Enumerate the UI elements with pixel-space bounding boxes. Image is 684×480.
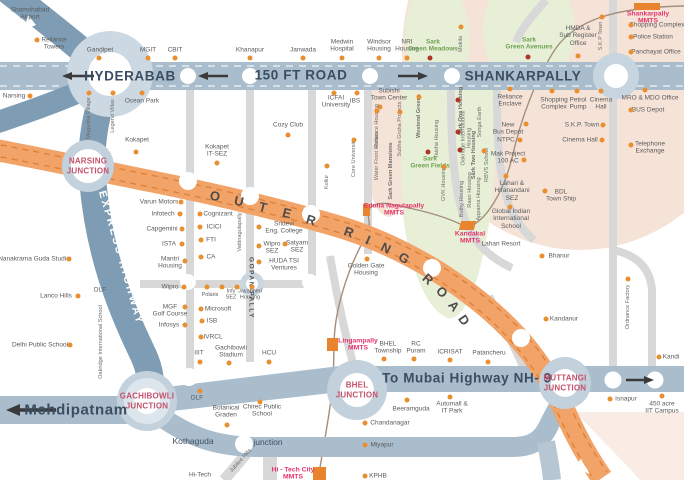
orr-letter: U [233,193,246,210]
map-label: junction [253,438,282,448]
map-label: Songa Earth [477,106,483,137]
poi-dot [428,56,433,61]
map-label: Apparna Housing [476,177,482,220]
map-label: Infy SEZ [226,289,237,302]
poi-dot [198,212,203,217]
map-label: Bhanur [549,252,570,259]
poi-dot [283,242,288,247]
poi-dot [198,360,203,365]
orr-letter: O [208,188,221,205]
poi-dot [540,254,545,259]
poi-dot [363,443,368,448]
poi-dot [456,98,461,103]
poi-dot [405,398,410,403]
poi-dot [146,56,151,61]
map-label: Kokapet IT-SEZ [205,144,229,159]
map-label: Cozy Club [273,121,303,128]
poi-dot [286,133,291,138]
map-label: DLF [94,286,106,293]
poi-dot [28,94,33,99]
poi-dot [459,25,464,30]
poi-dot [258,400,263,405]
map-label: Isnapur [615,395,637,402]
poi-dot [600,138,605,143]
poi-dot [182,285,187,290]
poi-dot [518,138,523,143]
poi-dot [67,257,72,262]
map-label: Chandanagar [370,419,409,426]
orr-letter: R [304,211,317,228]
poi-dot [442,165,447,170]
poi-dot [68,343,73,348]
poi-dot [198,389,203,394]
map-label: Lahari & Hiranandani SEZ [494,180,529,202]
map-label: DLF [191,394,203,401]
map-label: Global Indian International School [492,208,530,230]
map-label: ICRISAT [437,348,462,355]
map-label: CBIT [168,46,183,53]
map-label: IVRCL [203,333,222,340]
poi-dot [456,130,461,135]
map-label: Mantri Housing [158,256,182,271]
map-label: Miyapur [370,441,393,448]
map-label: Wipro [162,283,179,290]
mmts-station-label: Kandakal MMTS [455,231,485,246]
mmts-station-label: Shankarpally MMTS [627,11,669,26]
junction-label-gachibowli: GACHIBOWLI JUNCTION [120,391,174,410]
poi-dot [482,149,487,154]
poi-dot [426,150,431,155]
poi-dot [179,200,184,205]
map-label: HCU [262,349,276,356]
orr-letter: G [396,249,412,267]
map-label: Cinema Hall [562,136,597,143]
map-label: Cognizant [203,210,232,217]
map-label: BHEL Township [374,341,401,356]
map-label: Lahari Resort [481,240,520,247]
poi-dot [97,56,102,61]
poi-dot [522,158,527,163]
mmts-station-label: Hi - Tech City MMTS [272,467,315,480]
map-label: ISB [207,317,217,324]
map-label: Core University [351,139,357,177]
road-label-150ft: 150 FT ROAD [255,68,348,83]
map-label: Gachibowli Stadium [215,345,247,360]
map-label: ICFAI University [322,95,351,110]
poi-dot [486,360,491,365]
mmts-station-marker [634,3,660,10]
poi-dot [267,360,272,365]
road-label-mehdipatnam: Mehdipatnam [24,402,127,419]
map-label: S.K.P. Town [565,121,599,128]
poi-dot [657,355,662,360]
orr-letter: D [455,312,473,328]
map-label: Taisha Housing [434,120,440,158]
map-label: IIIT [194,349,203,356]
poi-dot [543,189,548,194]
map-label: New Bus Depot [493,122,523,137]
poi-dot [600,15,605,20]
poi-dot [375,109,380,114]
poi-dot [227,361,232,366]
map-label: Jubilee Hills [229,448,254,474]
map-label: Water Front Homes [374,132,380,181]
map-label: Buthy Housing [459,181,465,217]
poi-dot [76,294,81,299]
map-label: S.K.P Town [598,22,604,51]
map-label: Telephone Exchange [635,141,665,156]
poi-dot [524,122,529,127]
map-label: BUS Depot [632,106,665,113]
poi-dot [200,319,205,324]
poi-dot [576,54,581,59]
map-label: HMDA & Sub Register Office [559,25,597,47]
road-label-shankarpally: SHANKARPALLY [465,69,582,84]
poi-dot [448,358,453,363]
map-label: Hi-Tech [189,471,211,478]
junction-label-narsing: NARSING JUNCTION [67,156,110,175]
poi-dot [257,260,262,265]
map-label: Janwada [290,46,316,53]
poi-dot [643,88,648,93]
poi-dot [377,56,382,61]
poi-dot [550,89,555,94]
map-label: Ordnance Factory [625,285,631,330]
map-label: Kollur [324,175,330,189]
map-label: Infotech [151,210,174,217]
road-label-hyderabad: HYDERABAB [84,69,176,84]
poi-dot [198,225,203,230]
orr-letter: A [445,298,463,315]
poi-dot [660,394,665,399]
poi-dot [601,123,606,128]
map-label: CA [206,253,215,260]
map-label: Petrol Pump [570,97,587,112]
poi-dot [352,138,357,143]
map-label: Westend Greens [416,94,422,138]
poi-dot [526,55,531,60]
poi-dot [183,305,188,310]
map-label: Botanical Graden [213,405,240,420]
poi-dot [365,257,370,262]
poi-dot [504,174,509,179]
poi-dot [301,56,306,61]
map-canvas: HYDERABAB 150 FT ROAD SHANKARPALLY To Mu… [0,0,684,480]
mmts-station-marker [313,467,326,480]
road-label-nh9: To Mubai Highway NH- 9 [382,371,552,386]
poi-dot [180,227,185,232]
map-label: Shopping Complex [540,97,567,112]
map-label: MRO & MDO Office [622,94,679,101]
map-label: Mokila [458,36,464,52]
poi-dot [629,108,634,113]
map-label: GVK Housing [441,167,447,201]
map-label: Varun Motors [140,198,179,205]
map-label: Sark Green Mansions [388,142,394,199]
poi-dot [458,148,463,153]
map-label: Police Station [633,33,673,40]
map-label: Windsor Housing [367,39,391,54]
map-label: Lanco Hills [40,292,72,299]
map-label: Narsing [3,92,25,99]
poi-dot [250,285,255,290]
poi-dot [183,323,188,328]
map-label: IBS [350,97,360,104]
junction-label-muttangi: MUTTANGI JUNCTION [543,373,586,392]
map-label: Oakridge International School [98,305,104,379]
map-label: Delhi Public School [12,341,68,348]
poi-dot [183,259,188,264]
poi-dot [178,212,183,217]
poi-dot [629,143,634,148]
mmts-station-marker [459,221,476,230]
poi-dot [257,244,262,249]
poi-dot [340,56,345,61]
orr-letter: N [378,239,393,257]
junction-label-bhel: BHEL JUNCTION [336,380,379,399]
map-label: Reliance Towers [41,37,66,52]
mmts-station-label: Edulla Nagulapally MMTS [364,203,424,218]
map-label: Mak Project 100 AC [491,151,525,166]
poi-dot [134,150,139,155]
map-label: Panchayat Office [631,48,680,55]
map-label: BDL Town Ship [546,189,576,204]
poi-dot [417,95,422,100]
map-label: Microsoft [205,305,231,312]
map-label: Raan Housing [467,172,473,207]
poi-dot [199,335,204,340]
poi-dot [629,35,634,40]
map-label: Golden Gate Housing [348,263,385,278]
poi-dot [199,238,204,243]
map-label: Sark Green Meadows [408,39,458,54]
poi-dot [173,56,178,61]
poi-dot [363,421,368,426]
poi-dot [608,397,613,402]
poi-dot [332,91,337,96]
poi-dot [225,423,230,428]
poi-dot [626,277,631,282]
poi-dot [248,56,253,61]
poi-dot [220,285,225,290]
map-label: RC Puram [406,341,425,356]
map-label: ISTA [162,240,176,247]
map-label: Kokapet [125,136,149,143]
map-label: MGIT [140,46,156,53]
map-label: Kandi [663,353,680,360]
map-label: KPHB [369,472,387,479]
poi-dot [398,110,403,115]
map-label: Vattinagulapally [237,212,243,251]
map-label: NTPC [497,136,515,143]
poi-dot [405,56,410,61]
poi-dot [382,357,387,362]
poi-dot [140,91,145,96]
poi-dot [35,38,40,43]
map-label: Sridevi Eng. College [265,221,302,236]
map-label: Subishi Town Center [371,88,408,103]
poi-dot [180,242,185,247]
poi-dot [629,50,634,55]
map-label: Nanakrama Guda Studio [0,255,70,262]
poi-dot [257,225,262,230]
poi-dot [544,317,549,322]
map-label: Kandanur [550,315,578,322]
mmts-station-label: Lingampally MMTS [338,338,378,353]
map-label: Patancheru [472,349,505,356]
poi-dot [363,474,368,479]
map-label: Beeramguda [392,405,429,412]
map-label: Cinema Hall [590,97,612,112]
poi-dot [508,205,513,210]
orr-letter: R [342,223,356,240]
poi-dot [205,285,210,290]
poi-dot [199,255,204,260]
map-label: Magadha Village [86,97,92,139]
map-label: Infosys [159,321,180,328]
orr-letter: O [433,283,451,301]
map-label: ICICI [207,223,222,230]
map-label: Polaris [202,292,219,298]
map-label: Automall & IT Park [436,401,467,416]
map-label: Kothaguda [172,437,213,447]
poi-dot [325,164,330,169]
orr-letter: T [257,199,268,215]
map-label: Sark Green Avenues [505,37,552,52]
map-label: Shamshabad Airport [11,7,49,22]
poi-dot [87,91,92,96]
map-label: Chirec Public School [243,404,281,419]
map-label: HUDA TSI Ventures [269,258,299,273]
poi-dot [111,91,116,96]
map-label: Legend Villas [110,99,116,133]
map-label: Ocean Park [125,97,159,104]
poi-dot [235,285,240,290]
map-label: Satyam SEZ [286,240,308,255]
map-label: Medwin Hospital [330,39,353,54]
poi-dot [508,87,513,92]
orr-letter: R [419,270,436,287]
map-label: FTI [206,236,216,243]
poi-dot [199,307,204,312]
poi-dot [575,89,580,94]
poi-dot [215,161,220,166]
map-label: Wipro SEZ [264,241,281,256]
poi-dot [599,89,604,94]
mmts-station-marker [327,338,338,351]
poi-dot [412,357,417,362]
map-label: Reliance Enclave [497,94,522,109]
orr-letter: E [281,205,293,222]
map-label: Capgemini [146,225,177,232]
poi-dot [448,395,453,400]
map-label: Khanapur [236,46,264,53]
map-label: Gandipet [87,46,113,53]
poi-dot [355,91,360,96]
map-label: 450 acre IIT Campus [645,401,678,416]
orr-letter: I [363,232,372,247]
